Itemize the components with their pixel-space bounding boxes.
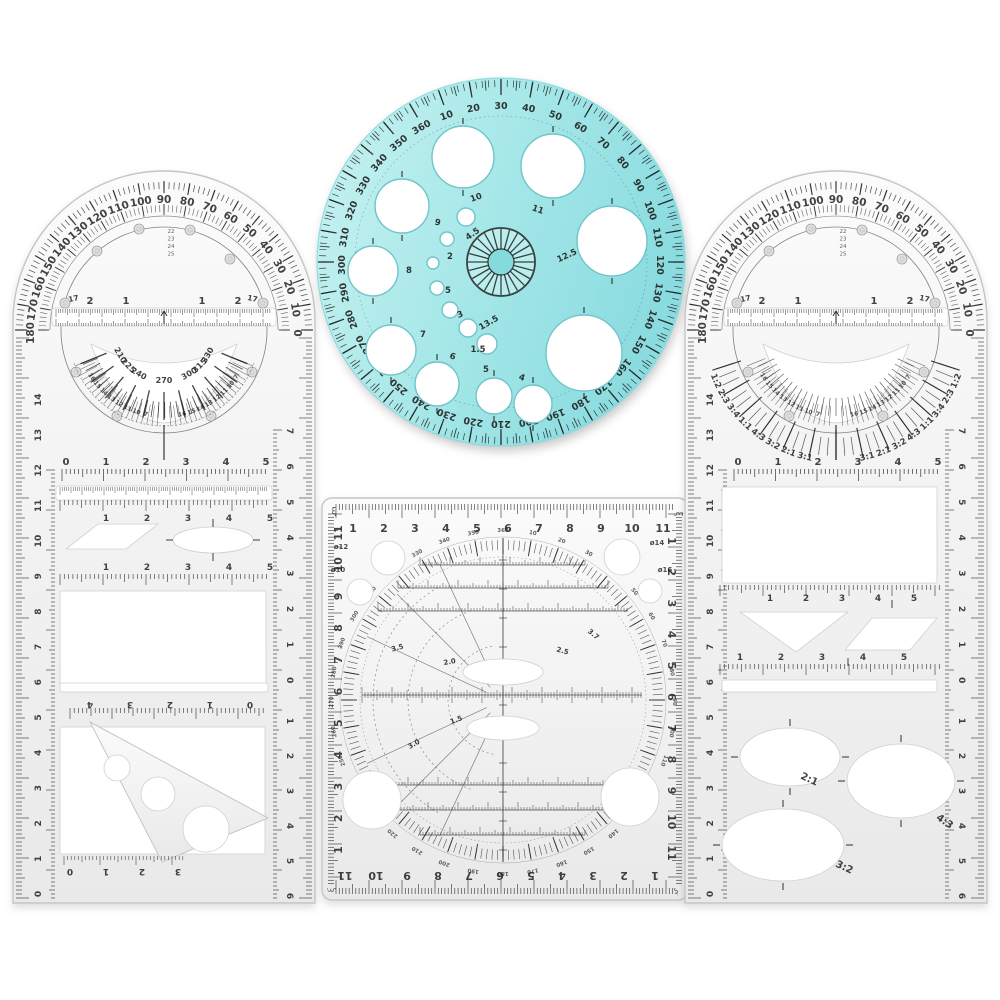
svg-text:6: 6: [956, 893, 966, 899]
svg-text:30: 30: [494, 101, 508, 112]
svg-text:1: 1: [706, 856, 716, 862]
svg-text:1: 1: [349, 522, 357, 535]
svg-text:2: 2: [34, 820, 44, 826]
svg-text:3: 3: [185, 514, 191, 524]
svg-text:2: 2: [380, 522, 388, 535]
svg-text:2: 2: [143, 457, 150, 468]
svg-text:1: 1: [737, 653, 743, 663]
svg-text:5: 5: [956, 499, 966, 505]
svg-text:1: 1: [34, 856, 44, 862]
svg-text:300: 300: [337, 255, 348, 275]
svg-text:2: 2: [235, 296, 242, 307]
svg-text:ø16: ø16: [658, 566, 673, 574]
svg-text:22: 22: [840, 229, 847, 235]
svg-text:3: 3: [589, 869, 597, 882]
svg-text:7: 7: [420, 330, 426, 340]
svg-text:4: 4: [875, 594, 881, 604]
svg-text:6: 6: [284, 463, 294, 469]
svg-text:2: 2: [778, 653, 784, 663]
svg-text:4: 4: [860, 653, 866, 663]
svg-text:180: 180: [697, 322, 709, 344]
svg-text:5: 5: [911, 594, 917, 604]
svg-text:4: 4: [895, 457, 902, 468]
svg-text:12: 12: [34, 464, 44, 477]
svg-text:0: 0: [963, 329, 975, 336]
svg-text:1: 1: [767, 594, 773, 604]
svg-text:1: 1: [284, 641, 294, 647]
svg-text:11: 11: [655, 522, 670, 535]
svg-text:5: 5: [267, 514, 273, 524]
svg-text:1: 1: [207, 699, 213, 709]
left-template-ruler: 0123456789101112131476543210123456010203…: [13, 171, 315, 903]
svg-text:4: 4: [223, 457, 230, 468]
svg-text:2: 2: [144, 514, 150, 524]
svg-text:1: 1: [871, 296, 878, 307]
svg-text:24: 24: [168, 244, 175, 250]
svg-text:360: 360: [497, 528, 509, 534]
svg-text:12: 12: [706, 464, 716, 477]
svg-text:4: 4: [706, 750, 716, 756]
svg-text:2: 2: [284, 753, 294, 759]
svg-text:1: 1: [956, 641, 966, 647]
svg-text:9: 9: [665, 787, 678, 795]
svg-text:23: 23: [840, 237, 847, 243]
svg-text:120: 120: [654, 255, 665, 275]
svg-text:7: 7: [332, 656, 345, 664]
svg-text:6: 6: [956, 463, 966, 469]
svg-text:3: 3: [411, 522, 419, 535]
svg-text:2: 2: [803, 594, 809, 604]
svg-text:6: 6: [332, 687, 345, 695]
svg-text:11: 11: [665, 845, 678, 860]
svg-text:8: 8: [706, 608, 716, 614]
svg-text:1: 1: [665, 537, 678, 545]
svg-text:8: 8: [406, 266, 412, 276]
svg-text:3: 3: [284, 788, 294, 794]
svg-text:6: 6: [34, 679, 44, 685]
svg-text:1: 1: [123, 296, 130, 307]
svg-text:5: 5: [34, 714, 44, 720]
svg-text:3: 3: [127, 699, 133, 709]
svg-text:4: 4: [558, 869, 566, 882]
svg-text:3: 3: [956, 570, 966, 576]
svg-text:13: 13: [34, 429, 44, 442]
svg-text:5: 5: [483, 365, 489, 375]
svg-text:3: 3: [706, 785, 716, 791]
svg-text:9: 9: [706, 573, 716, 579]
svg-text:1: 1: [795, 296, 802, 307]
svg-text:180: 180: [497, 870, 509, 876]
svg-text:10: 10: [960, 302, 974, 318]
svg-text:11: 11: [337, 869, 352, 882]
svg-text:1: 1: [651, 869, 659, 882]
svg-text:ø14: ø14: [650, 539, 665, 547]
svg-text:3: 3: [332, 783, 345, 791]
svg-text:0: 0: [284, 677, 294, 683]
svg-text:270: 270: [329, 696, 335, 708]
svg-text:3: 3: [956, 788, 966, 794]
svg-text:0: 0: [735, 457, 742, 468]
product-photo: 0123456789101112131476543210123456010203…: [0, 0, 1000, 1000]
svg-text:7: 7: [284, 428, 294, 434]
svg-text:1: 1: [103, 866, 109, 876]
svg-text:10: 10: [288, 302, 302, 318]
svg-text:1: 1: [199, 296, 206, 307]
svg-text:24: 24: [840, 244, 847, 250]
svg-text:9: 9: [403, 869, 411, 882]
svg-text:4: 4: [226, 514, 232, 524]
svg-text:22: 22: [168, 229, 175, 235]
svg-text:3: 3: [185, 563, 191, 573]
svg-text:3: 3: [175, 866, 181, 876]
svg-text:2: 2: [907, 296, 914, 307]
svg-text:10: 10: [34, 535, 44, 548]
svg-text:2: 2: [332, 814, 345, 822]
svg-text:9: 9: [34, 573, 44, 579]
svg-text:180: 180: [25, 322, 37, 344]
svg-text:1: 1: [103, 514, 109, 524]
svg-text:ξ: ξ: [673, 511, 683, 516]
svg-text:2: 2: [167, 699, 173, 709]
svg-text:1: 1: [332, 846, 345, 854]
svg-text:20: 20: [466, 102, 481, 115]
svg-text:3: 3: [183, 457, 190, 468]
svg-text:5: 5: [332, 719, 345, 727]
svg-text:4: 4: [442, 522, 450, 535]
svg-text:2: 2: [144, 563, 150, 573]
svg-text:4: 4: [956, 535, 966, 541]
svg-text:11: 11: [332, 525, 345, 540]
svg-text:5: 5: [935, 457, 942, 468]
svg-text:0: 0: [706, 891, 716, 897]
svg-text:1: 1: [956, 718, 966, 724]
svg-text:270: 270: [156, 376, 173, 385]
svg-text:2: 2: [87, 296, 94, 307]
svg-text:2: 2: [620, 869, 628, 882]
svg-text:8: 8: [434, 869, 442, 882]
svg-text:4: 4: [226, 563, 232, 573]
svg-text:2: 2: [139, 866, 145, 876]
svg-text:6: 6: [284, 893, 294, 899]
svg-text:1: 1: [775, 457, 782, 468]
svg-text:ø10: ø10: [331, 566, 346, 574]
svg-text:4: 4: [34, 750, 44, 756]
svg-text:2: 2: [284, 606, 294, 612]
svg-text:4: 4: [284, 823, 294, 829]
svg-text:25: 25: [840, 252, 847, 258]
svg-text:0: 0: [956, 677, 966, 683]
svg-text:9: 9: [597, 522, 605, 535]
svg-text:7: 7: [956, 428, 966, 434]
svg-text:3: 3: [284, 570, 294, 576]
svg-text:6: 6: [706, 679, 716, 685]
svg-text:0: 0: [247, 699, 253, 709]
svg-text:14: 14: [706, 394, 716, 407]
svg-text:0: 0: [67, 866, 73, 876]
svg-text:8: 8: [566, 522, 574, 535]
svg-text:11: 11: [706, 499, 716, 512]
svg-text:3: 3: [839, 594, 845, 604]
svg-text:3: 3: [34, 785, 44, 791]
square-template: 1234567891011123456789101111109876543211…: [322, 498, 688, 900]
svg-text:2: 2: [706, 820, 716, 826]
svg-text:1.5: 1.5: [470, 345, 485, 355]
svg-text:4: 4: [284, 535, 294, 541]
svg-text:10: 10: [624, 522, 640, 535]
svg-text:4: 4: [665, 631, 678, 639]
svg-text:8: 8: [332, 624, 345, 632]
svg-text:10: 10: [368, 869, 384, 882]
svg-text:10: 10: [706, 535, 716, 548]
svg-text:7: 7: [706, 644, 716, 650]
svg-text:1: 1: [103, 457, 110, 468]
svg-text:3: 3: [665, 600, 678, 608]
svg-text:0: 0: [34, 891, 44, 897]
svg-text:5: 5: [445, 286, 451, 296]
svg-text:0: 0: [291, 329, 303, 336]
svg-text:5: 5: [956, 858, 966, 864]
svg-text:5: 5: [901, 653, 907, 663]
svg-text:2: 2: [956, 606, 966, 612]
svg-text:0: 0: [63, 457, 70, 468]
svg-text:1: 1: [284, 718, 294, 724]
svg-text:14: 14: [34, 394, 44, 407]
svg-text:ξ: ξ: [331, 507, 336, 517]
svg-text:9: 9: [332, 593, 345, 601]
svg-text:1: 1: [103, 563, 109, 573]
svg-text:ø12: ø12: [334, 543, 349, 551]
svg-text:3: 3: [819, 653, 825, 663]
svg-text:90: 90: [671, 698, 677, 706]
svg-text:10: 10: [665, 814, 678, 830]
svg-text:2: 2: [956, 753, 966, 759]
scene-svg: 0123456789101112131476543210123456010203…: [0, 0, 1000, 1000]
svg-text:2: 2: [815, 457, 822, 468]
svg-text:5: 5: [284, 499, 294, 505]
svg-text:7: 7: [34, 644, 44, 650]
circle-template: 1020304050607080901001101201301401501601…: [317, 78, 685, 446]
svg-text:2: 2: [759, 296, 766, 307]
svg-text:2: 2: [447, 252, 453, 262]
svg-text:25: 25: [168, 252, 175, 258]
svg-text:11: 11: [34, 499, 44, 512]
svg-text:13: 13: [706, 429, 716, 442]
svg-text:8: 8: [34, 608, 44, 614]
svg-text:23: 23: [168, 237, 175, 243]
svg-text:4: 4: [87, 699, 93, 709]
right-template-ruler: 0123456789101112131476543210123456010203…: [685, 171, 987, 903]
svg-text:5: 5: [267, 563, 273, 573]
svg-text:5: 5: [706, 714, 716, 720]
svg-text:3: 3: [855, 457, 862, 468]
svg-text:5: 5: [263, 457, 270, 468]
svg-text:40: 40: [521, 102, 536, 115]
svg-text:4: 4: [956, 823, 966, 829]
svg-text:5: 5: [284, 858, 294, 864]
